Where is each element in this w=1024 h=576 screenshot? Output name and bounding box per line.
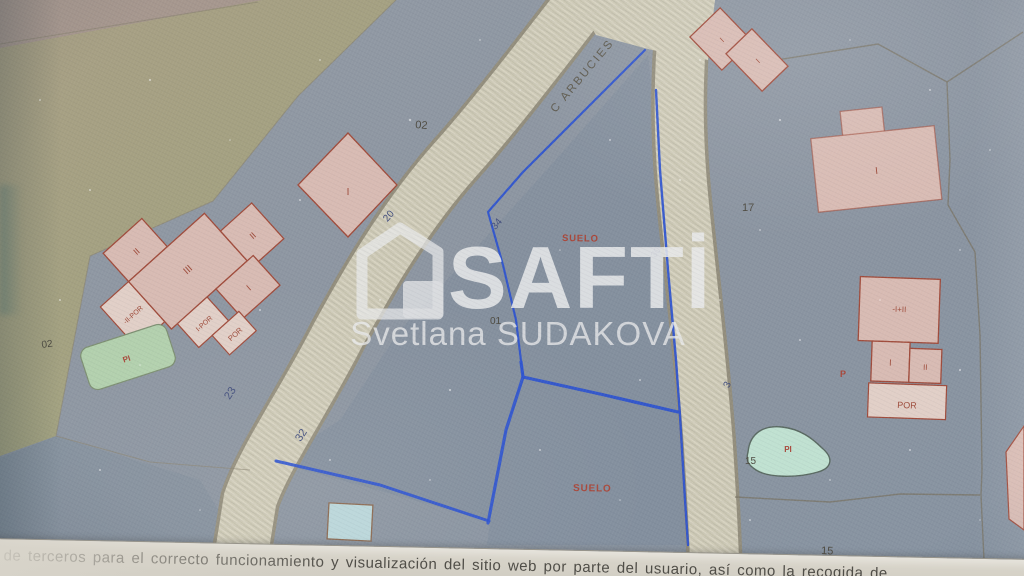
cadastral-map-canvas[interactable]: II -II-POR III II I I-POR POR PI I I I I… — [0, 0, 1024, 576]
building-label: I — [889, 358, 892, 368]
building-label: I — [347, 187, 350, 198]
building-label: POR — [897, 400, 917, 411]
parcel-number-17: 17 — [742, 202, 754, 214]
building-label-p: P — [840, 369, 846, 379]
parcel-number-02: 02 — [415, 119, 428, 132]
screen-photo: II -II-POR III II I I-POR POR PI I I I I… — [0, 0, 1024, 576]
parcel-number-02b: 02 — [41, 338, 54, 351]
building-label: II — [923, 363, 928, 372]
pond-label: PI — [784, 445, 792, 454]
watermark-brand: SAFTİ — [448, 228, 712, 327]
watermark-agent: Svetlana SUDAKOVA — [350, 315, 686, 352]
building-label: -I+II — [892, 305, 906, 314]
parcel-number-15-pond: 15 — [745, 456, 757, 467]
zone-label-suelo-lower: SUELO — [573, 483, 612, 495]
building-bottom-blue — [327, 503, 373, 541]
